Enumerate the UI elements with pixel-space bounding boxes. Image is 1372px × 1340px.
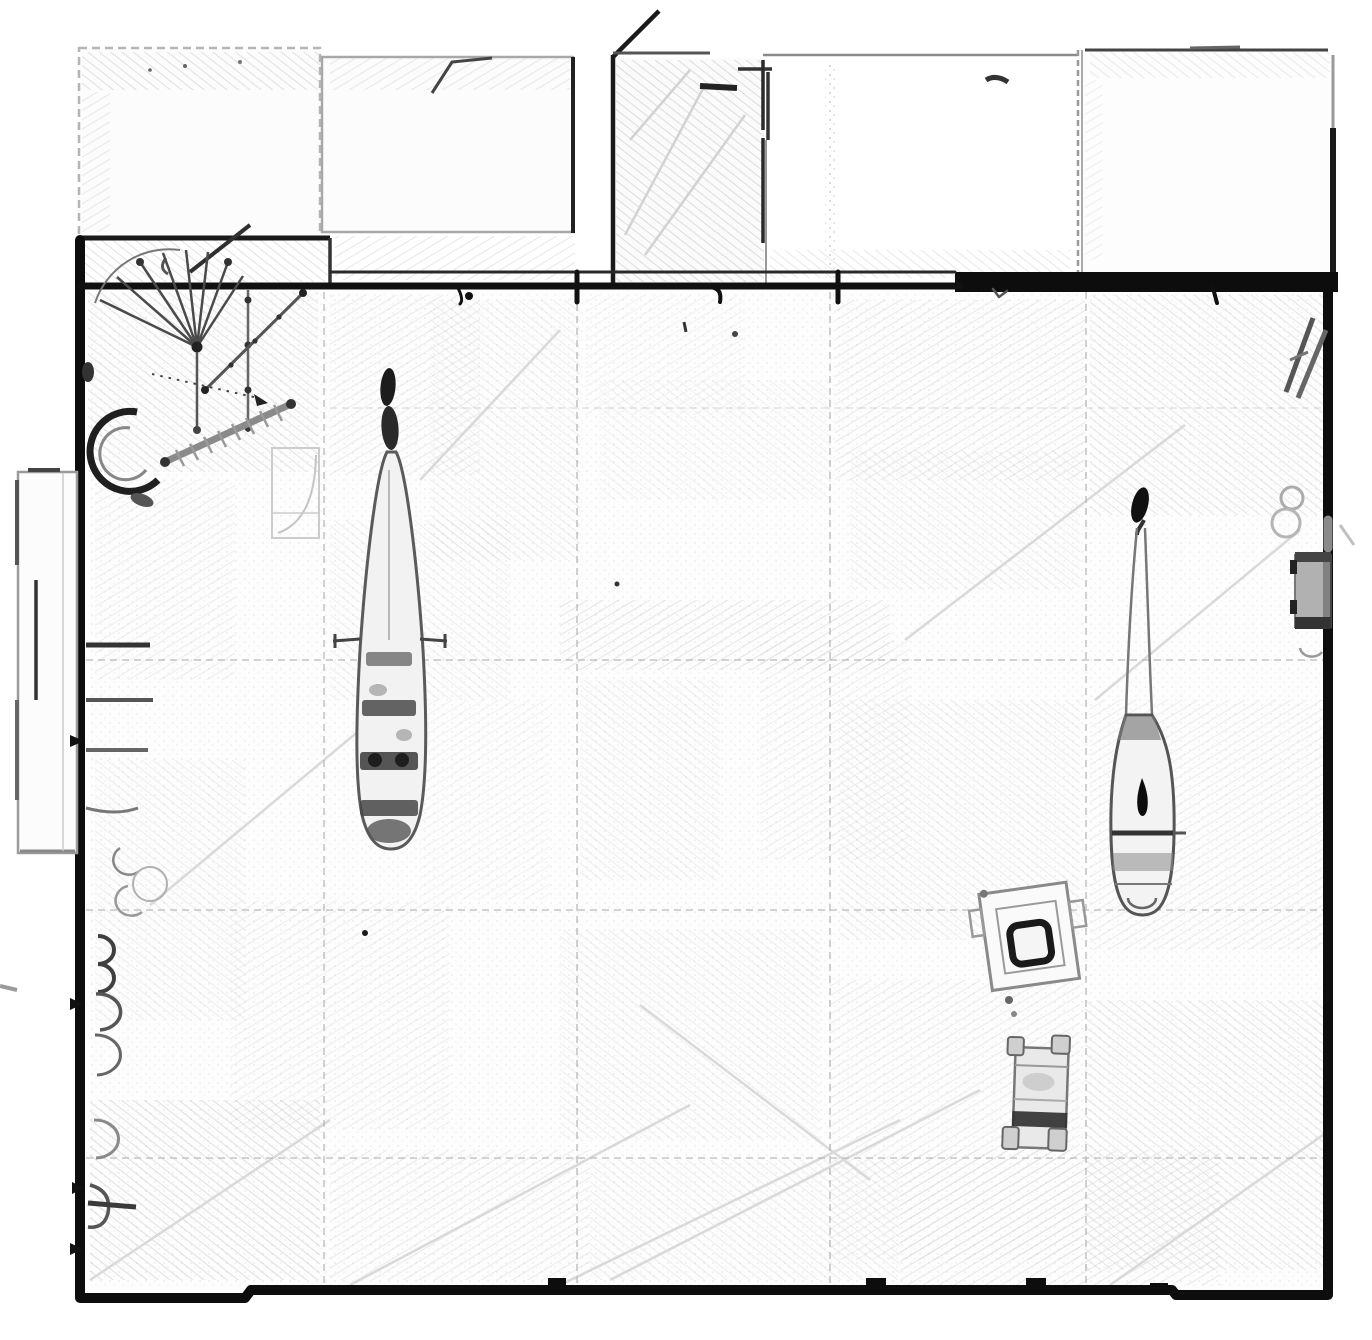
top-wall-thick	[955, 272, 1338, 292]
floor-dot	[1005, 996, 1013, 1004]
top-rooms	[79, 11, 1333, 290]
floorplan-sketch	[0, 0, 1372, 1340]
room-e	[1082, 47, 1333, 290]
floor-dot	[1011, 1011, 1017, 1017]
plan-drawing	[0, 0, 1372, 1340]
case-core	[1009, 921, 1053, 965]
room-b	[322, 57, 573, 233]
